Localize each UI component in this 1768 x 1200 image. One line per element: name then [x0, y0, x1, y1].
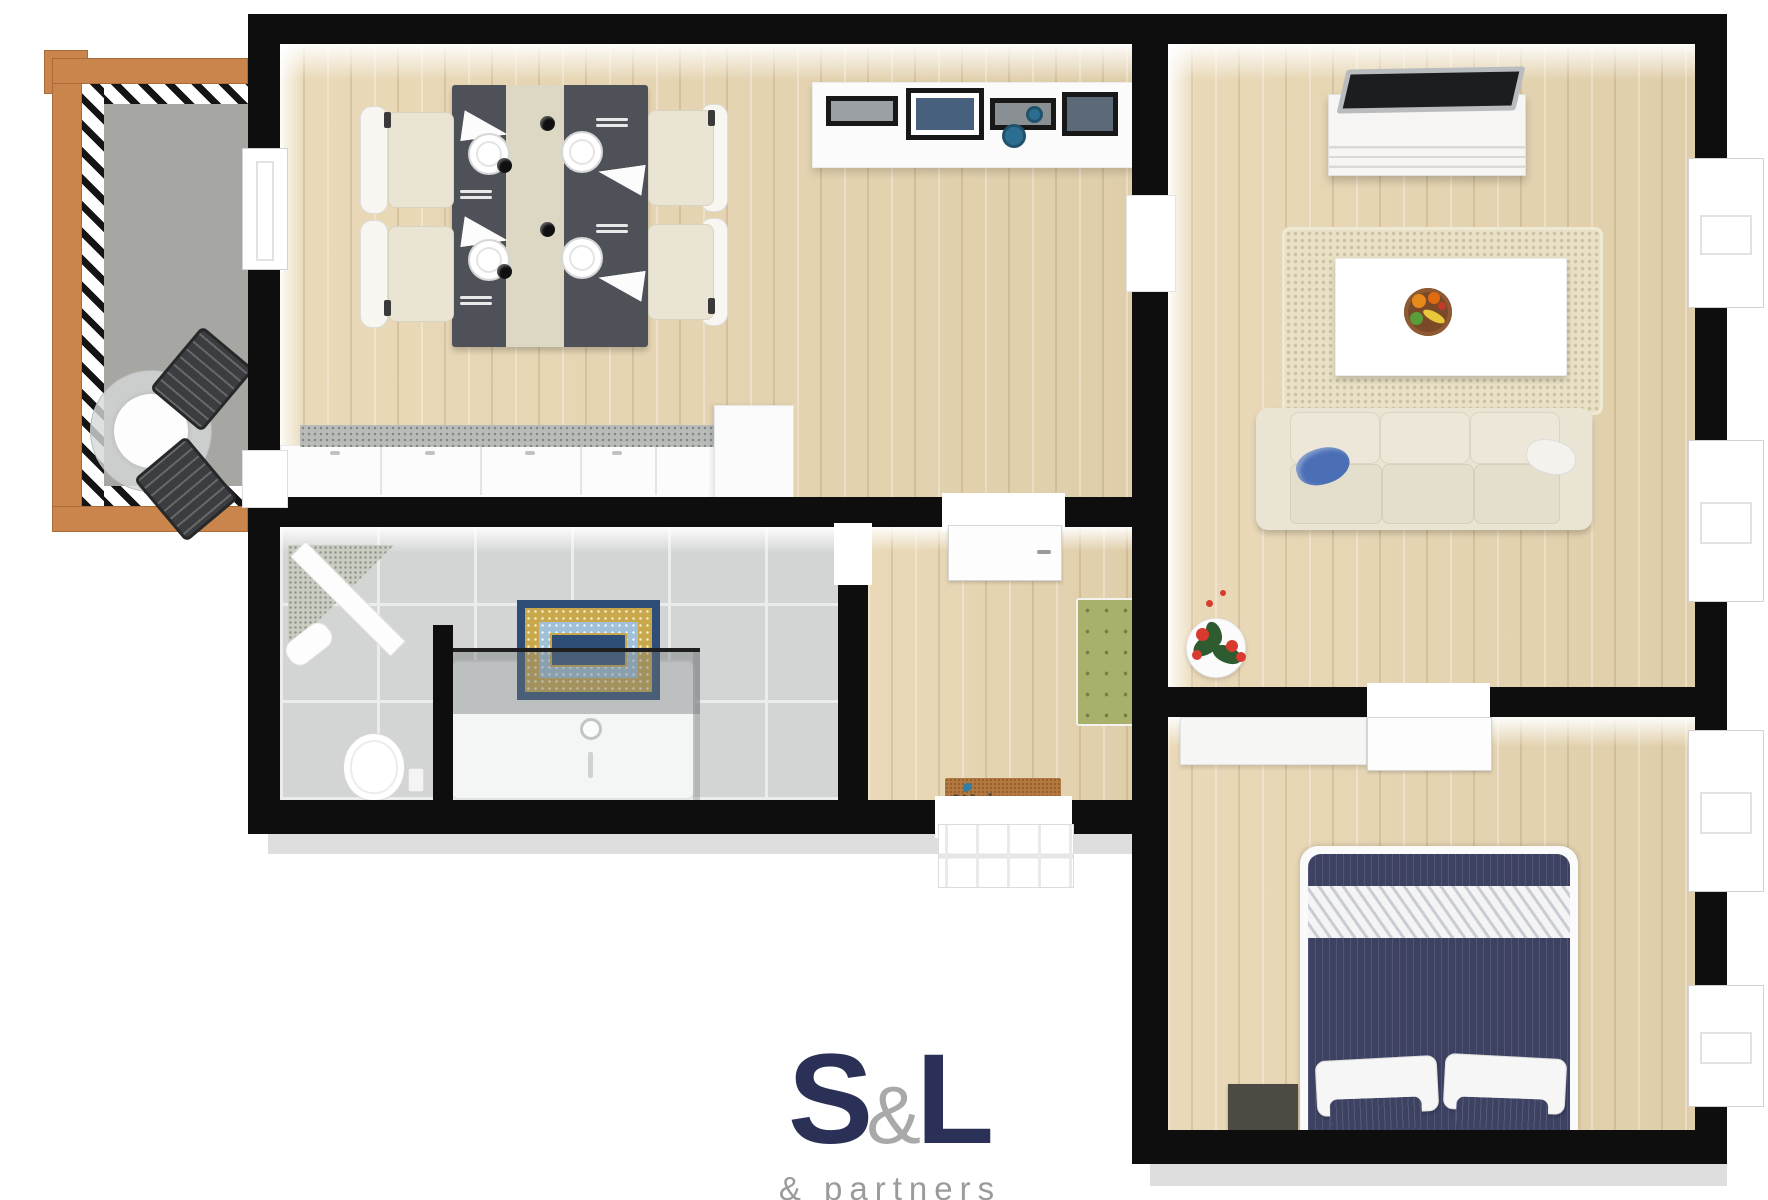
sofa-back-cushion-2 — [1380, 412, 1470, 464]
living-west-wall-face — [1168, 44, 1196, 687]
living-window-1 — [1688, 158, 1764, 308]
flower-bud-2 — [1220, 590, 1226, 596]
balcony-beam-top — [52, 58, 248, 84]
counter-handle-3 — [525, 451, 535, 455]
bed-pillow-navy-2 — [1455, 1096, 1548, 1131]
hallway-bench — [1076, 598, 1134, 726]
bedroom-window-2 — [1688, 985, 1764, 1107]
cup-4 — [540, 222, 555, 237]
counter-divider-4 — [655, 447, 657, 495]
plate-4 — [561, 237, 603, 279]
flower-3 — [1236, 652, 1246, 662]
bedroom-door-opening — [1367, 683, 1490, 721]
bedroom-door-threshold — [1367, 717, 1492, 771]
shower-drain — [580, 718, 602, 740]
logo-letter-s: S — [788, 1036, 871, 1164]
flower-4 — [1192, 650, 1202, 660]
slab-edge-bottom-right — [1150, 1164, 1727, 1186]
wall-left — [248, 14, 280, 834]
cutlery-1a — [460, 190, 492, 193]
picture-frame-2 — [906, 88, 984, 140]
balcony-beam-left — [52, 58, 82, 532]
dining-chair-seat-4 — [648, 224, 714, 320]
shower-glass-right — [693, 652, 700, 800]
counter-handle-2 — [425, 451, 435, 455]
counter-handle-1 — [330, 451, 340, 455]
wall-top — [248, 14, 1727, 44]
wall-bathroom-partition — [433, 625, 453, 800]
balcony-door-window — [242, 148, 288, 270]
fruit-berry — [1438, 302, 1446, 310]
cutlery-4a — [596, 224, 628, 227]
bed-pillow-navy-1 — [1329, 1096, 1422, 1131]
flower-bud-1 — [1206, 600, 1213, 607]
kitchen-counter-front — [280, 445, 716, 499]
bathroom-door-opening — [834, 523, 872, 585]
floor-plan: Welcome — [0, 0, 1768, 1200]
balcony-window-small — [242, 450, 288, 508]
chair-frame-mark-2 — [384, 300, 391, 316]
counter-handle-4 — [612, 451, 622, 455]
cutlery-4b — [596, 230, 628, 233]
kitchen-counter-top — [300, 425, 714, 447]
wall-center-vertical — [1132, 14, 1168, 1164]
kitchen-living-door-opening — [1126, 195, 1176, 292]
balcony-railing-top — [104, 84, 248, 104]
living-window-2 — [1688, 440, 1764, 602]
plate-2 — [561, 131, 603, 173]
counter-divider-2 — [480, 447, 482, 495]
brand-logo: S & L & partners — [770, 1036, 1010, 1200]
cup-3 — [497, 264, 512, 279]
counter-divider-1 — [380, 447, 382, 495]
bed-folded-sheet — [1308, 886, 1570, 938]
kitchen-appliance — [714, 405, 794, 499]
blue-bowl-small — [1026, 106, 1043, 123]
bedroom-window-1 — [1688, 730, 1764, 892]
logo-wordmark: S & L — [770, 1036, 1010, 1164]
cup-1 — [497, 158, 512, 173]
wall-bedroom-bottom — [1132, 1130, 1727, 1164]
cutlery-1b — [460, 196, 492, 199]
picture-frame-3 — [990, 98, 1056, 130]
flower-2 — [1226, 640, 1238, 652]
cutlery-2b — [596, 124, 628, 127]
shower-handle — [588, 752, 593, 778]
toilet-roll — [408, 768, 424, 792]
cutlery-2a — [596, 118, 628, 121]
cup-2 — [540, 116, 555, 131]
sofa-seat-cushion-2 — [1382, 464, 1474, 524]
cutlery-3a — [460, 296, 492, 299]
shower-glass-screen — [446, 648, 700, 714]
nightstand — [1228, 1084, 1298, 1130]
logo-subtitle: & partners — [770, 1170, 1010, 1200]
chair-frame-mark-3 — [708, 110, 715, 126]
toilet — [343, 733, 405, 801]
logo-letter-l: L — [916, 1036, 992, 1164]
table-runner — [506, 85, 564, 347]
bedroom-dresser — [1180, 717, 1367, 765]
logo-ampersand: & — [866, 1075, 921, 1157]
chair-frame-mark-1 — [384, 112, 391, 128]
front-door — [938, 824, 1074, 888]
kitchen-north-wall-face — [280, 44, 1132, 80]
picture-frame-1 — [826, 96, 898, 126]
chair-frame-mark-4 — [708, 298, 715, 314]
dining-chair-seat-1 — [388, 112, 454, 208]
tv-screen — [1337, 66, 1526, 113]
fruit-orange-1 — [1412, 294, 1426, 308]
cutlery-3b — [460, 302, 492, 305]
fruit-apple — [1410, 312, 1423, 325]
dining-chair-seat-3 — [648, 110, 714, 206]
flower-1 — [1196, 628, 1209, 641]
picture-frame-4 — [1062, 92, 1118, 136]
door-handle — [1037, 550, 1051, 554]
counter-divider-3 — [580, 447, 582, 495]
dining-chair-seat-2 — [388, 226, 454, 322]
blue-bowl-large — [1002, 124, 1026, 148]
kitchen-hall-open-door — [948, 525, 1062, 581]
